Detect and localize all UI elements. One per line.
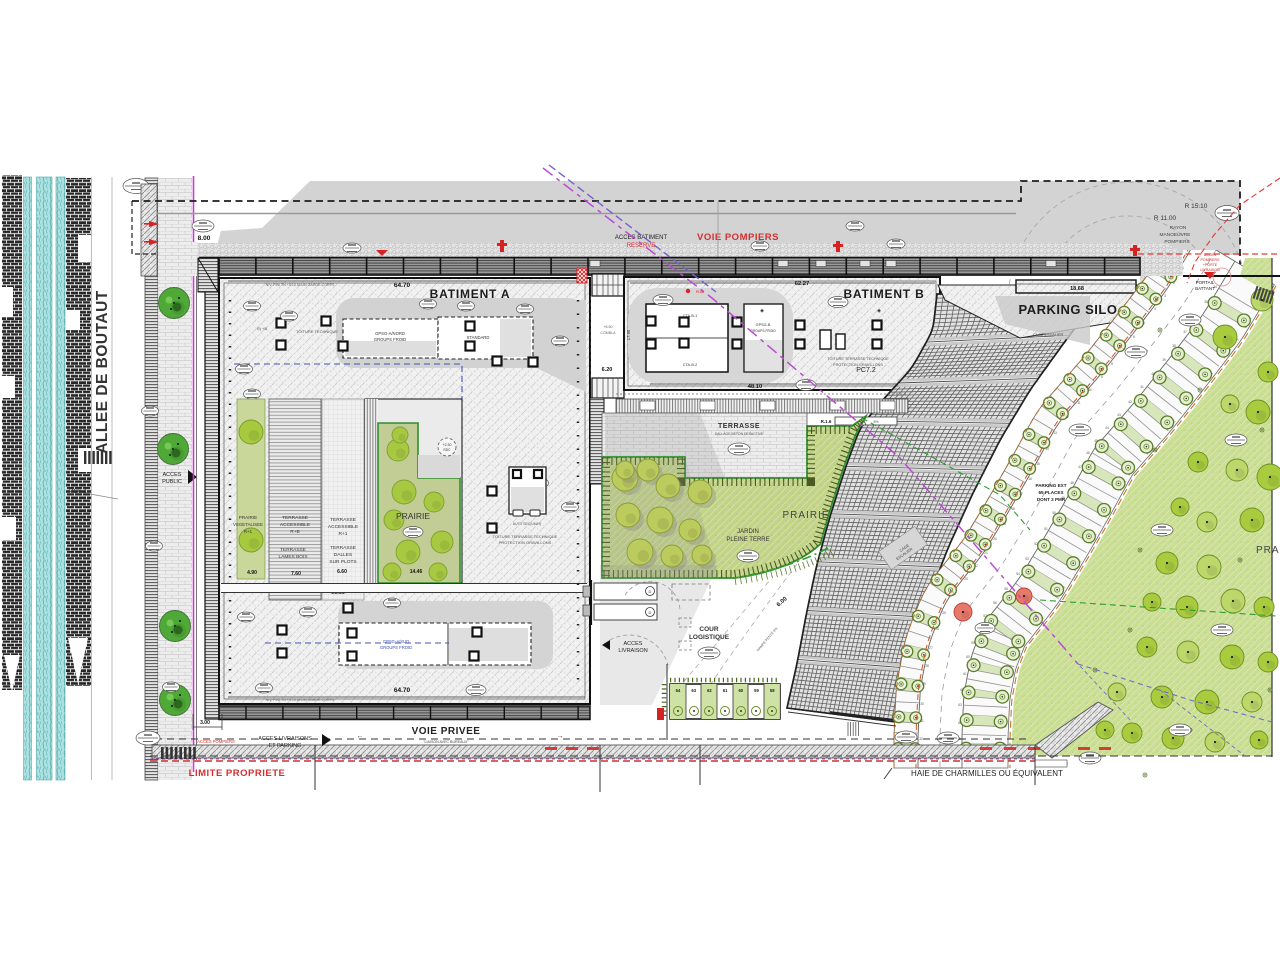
svg-text:DALLES: DALLES — [334, 552, 352, 558]
svg-text:5: 5 — [1143, 321, 1145, 325]
svg-text:14.46: 14.46 — [410, 569, 423, 575]
svg-text:TERRASSE: TERRASSE — [280, 547, 306, 553]
svg-text:27: 27 — [929, 646, 933, 650]
svg-text:7: 7 — [1122, 348, 1124, 352]
svg-text:BATIMENT B: BATIMENT B — [843, 287, 924, 301]
svg-text:48: 48 — [1070, 481, 1074, 485]
svg-text:21: 21 — [984, 551, 988, 555]
svg-text:GROUPS FROID: GROUPS FROID — [380, 645, 412, 650]
svg-text:3.00: 3.00 — [200, 720, 210, 726]
svg-text:NIV. FINI TN +5.10 ALUM GARDE-: NIV. FINI TN +5.10 ALUM GARDE-CORPS — [266, 283, 335, 287]
svg-text:4.90: 4.90 — [247, 570, 257, 576]
svg-text:38: 38 — [1172, 344, 1176, 348]
svg-text:32: 32 — [919, 737, 923, 741]
svg-text:R.1.6: R.1.6 — [821, 419, 832, 424]
svg-text:37: 37 — [1183, 330, 1187, 334]
svg-text:24: 24 — [952, 592, 956, 596]
svg-text:PRAIRIE: PRAIRIE — [782, 510, 829, 521]
svg-text:PORTAIL: PORTAIL — [1196, 280, 1215, 285]
svg-text:30: 30 — [920, 702, 924, 706]
svg-text:PARKING EXT: PARKING EXT — [1035, 483, 1066, 488]
svg-text:52: 52 — [1034, 542, 1038, 546]
svg-text:COMBLA: COMBLA — [600, 331, 616, 335]
svg-text:59: 59 — [754, 688, 759, 693]
svg-text:18: 18 — [1011, 507, 1015, 511]
svg-text:JARDIN: JARDIN — [737, 529, 759, 535]
svg-text:17.95: 17.95 — [626, 329, 631, 340]
svg-text:ACCES BATIMENT: ACCES BATIMENT — [615, 235, 668, 241]
svg-text:57: 57 — [983, 614, 987, 618]
svg-text:60: 60 — [966, 655, 970, 659]
svg-text:PRAIRIE: PRAIRIE — [1256, 545, 1280, 556]
svg-text:DALLAGE BETON DESACTIVE: DALLAGE BETON DESACTIVE — [715, 432, 764, 436]
svg-text:TERRASSE: TERRASSE — [282, 515, 308, 521]
svg-text:VOIE PRIVEE: VOIE PRIVEE — [412, 726, 481, 737]
svg-text:43: 43 — [1117, 413, 1121, 417]
svg-text:R) +B: R) +B — [257, 326, 268, 331]
svg-text:COUR: COUR — [699, 626, 718, 633]
svg-text:R+B: R+B — [290, 529, 299, 535]
svg-text:POMPIERS: POMPIERS — [1201, 258, 1221, 262]
svg-text:12: 12 — [1065, 415, 1069, 419]
svg-text:23: 23 — [964, 577, 968, 581]
svg-text:61: 61 — [963, 672, 967, 676]
svg-text:ACCES: ACCES — [1204, 253, 1217, 257]
svg-text:◈: ◈ — [877, 308, 881, 314]
svg-text:STANDARD: STANDARD — [467, 335, 490, 340]
svg-text:+PORTE: +PORTE — [1203, 263, 1218, 267]
svg-text:5%: 5% — [873, 420, 878, 424]
svg-text:50: 50 — [1052, 511, 1056, 515]
svg-text:ACCESSIBLE: ACCESSIBLE — [280, 522, 310, 528]
svg-text:59: 59 — [971, 641, 975, 645]
svg-text:65 PLACES: 65 PLACES — [1038, 490, 1063, 495]
svg-text:64.70: 64.70 — [394, 282, 411, 289]
svg-text:15: 15 — [1036, 462, 1040, 466]
svg-text:56: 56 — [993, 601, 997, 605]
svg-text:TOITURE TECHNIQUE: TOITURE TECHNIQUE — [296, 329, 338, 334]
svg-text:31: 31 — [920, 719, 924, 723]
svg-text:TERRASSE: TERRASSE — [330, 517, 356, 523]
svg-text:LIVRAISON: LIVRAISON — [618, 648, 647, 654]
svg-text:GROUPS FROID: GROUPS FROID — [374, 337, 406, 342]
svg-text:R+1: R+1 — [339, 531, 348, 537]
svg-text:◈: ◈ — [760, 308, 764, 314]
svg-text:CAGE ESCALIER: CAGE ESCALIER — [1033, 333, 1064, 337]
svg-text:PARKING SILO: PARKING SILO — [1019, 302, 1118, 317]
svg-text:44: 44 — [1105, 426, 1109, 430]
svg-text:64: 64 — [958, 721, 962, 725]
svg-text:6.20: 6.20 — [602, 367, 613, 373]
svg-text:PROTECTION GRAVILLONS: PROTECTION GRAVILLONS — [499, 540, 552, 545]
svg-text:54: 54 — [1016, 572, 1020, 576]
svg-text:MANOEUVRE: MANOEUVRE — [1160, 232, 1191, 238]
svg-text:CTA-B-2: CTA-B-2 — [683, 363, 698, 367]
svg-text:ACCES POMPIERS: ACCES POMPIERS — [197, 739, 235, 744]
svg-text:61: 61 — [723, 688, 728, 693]
svg-text:47: 47 — [1078, 465, 1082, 469]
svg-text:DONT 2 PMR: DONT 2 PMR — [1037, 497, 1066, 502]
svg-text:BATTANT: BATTANT — [1195, 286, 1215, 291]
svg-text:6: 6 — [1133, 335, 1135, 339]
svg-text:←: ← — [357, 733, 364, 740]
svg-text:62.27: 62.27 — [795, 281, 810, 287]
svg-text:4: 4 — [1154, 307, 1156, 311]
svg-text:NIV. FINI TN +5.10 ALUM GARDE-: NIV. FINI TN +5.10 ALUM GARDE-CORPS — [266, 698, 335, 702]
svg-text:45: 45 — [1094, 439, 1098, 443]
svg-text:RAYON: RAYON — [1170, 225, 1187, 231]
svg-text:9: 9 — [1101, 375, 1103, 379]
svg-text:22: 22 — [974, 564, 978, 568]
svg-text:ACCESSIBLE: ACCESSIBLE — [328, 524, 358, 530]
svg-text:16: 16 — [1028, 477, 1032, 481]
svg-text:39: 39 — [1162, 358, 1166, 362]
svg-text:62: 62 — [707, 688, 712, 693]
svg-text:3: 3 — [1164, 294, 1166, 298]
svg-text:TERRASSE: TERRASSE — [330, 545, 356, 551]
svg-text:40: 40 — [1151, 372, 1155, 376]
svg-text:PLEINE TERRE: PLEINE TERRE — [726, 537, 769, 543]
svg-text:LIVRAISON: LIVRAISON — [1200, 268, 1220, 272]
svg-text:D: D — [649, 610, 652, 615]
svg-text:D: D — [649, 589, 652, 594]
svg-text:13: 13 — [1053, 431, 1057, 435]
svg-text:→: → — [557, 733, 564, 740]
svg-text:GPSG-A/NORD: GPSG-A/NORD — [375, 331, 405, 336]
svg-text:63: 63 — [691, 688, 696, 693]
svg-text:PRAIRIE: PRAIRIE — [396, 511, 430, 521]
svg-text:"LIAISON AVEC BUREAUX": "LIAISON AVEC BUREAUX" — [423, 740, 469, 744]
svg-text:ACCES LIVRAISONS: ACCES LIVRAISONS — [258, 736, 312, 742]
svg-text:18.68: 18.68 — [1070, 286, 1084, 292]
svg-text:PROTECTION GRAVILLONS: PROTECTION GRAVILLONS — [833, 363, 883, 367]
svg-text:63: 63 — [958, 703, 962, 707]
svg-text:48.10: 48.10 — [748, 384, 763, 390]
svg-text:20: 20 — [993, 537, 997, 541]
svg-text:8: 8 — [1111, 362, 1113, 366]
svg-text:19: 19 — [1002, 522, 1006, 526]
svg-text:51: 51 — [1044, 527, 1048, 531]
svg-text:PC7.2: PC7.2 — [856, 367, 876, 374]
svg-text:AUTO SEC(UM/H): AUTO SEC(UM/H) — [513, 522, 541, 526]
svg-text:LIMITE PROPRIETE: LIMITE PROPRIETE — [189, 768, 286, 779]
svg-text:29: 29 — [922, 682, 926, 686]
svg-text:PRAIRIE: PRAIRIE — [239, 515, 257, 520]
svg-text:R 15.10: R 15.10 — [1185, 203, 1208, 210]
svg-text:10: 10 — [1088, 388, 1092, 392]
svg-text:ACCES: ACCES — [163, 472, 182, 478]
svg-text:64.70: 64.70 — [394, 687, 411, 694]
svg-text:TERRASSE: TERRASSE — [718, 423, 760, 430]
svg-text:PUBLIC: PUBLIC — [162, 479, 182, 485]
svg-text:R 11.00: R 11.00 — [1154, 215, 1177, 222]
svg-text:RDC: RDC — [444, 448, 452, 452]
svg-text:8.00: 8.00 — [198, 235, 211, 242]
svg-text:25: 25 — [942, 611, 946, 615]
svg-text:ALLEE DE BOUTAUT: ALLEE DE BOUTAUT — [94, 290, 111, 454]
svg-text:64: 64 — [676, 688, 681, 693]
svg-text:LAMES BOIS: LAMES BOIS — [278, 554, 307, 560]
svg-text:6.60: 6.60 — [337, 569, 347, 575]
svg-text:17: 17 — [1019, 492, 1023, 496]
svg-text:SUR PLOTS: SUR PLOTS — [329, 559, 356, 565]
svg-text:35: 35 — [1204, 300, 1208, 304]
svg-text:46: 46 — [1086, 451, 1090, 455]
svg-text:42: 42 — [1128, 400, 1132, 404]
svg-text:62: 62 — [960, 688, 964, 692]
svg-text:55: 55 — [1004, 587, 1008, 591]
svg-text:GPSG-B: GPSG-B — [756, 323, 771, 327]
svg-text:26: 26 — [935, 627, 939, 631]
svg-text:TOITURE TERRASSE TECHNIQUE: TOITURE TERRASSE TECHNIQUE — [827, 357, 889, 361]
svg-text:ET PARKING: ET PARKING — [269, 743, 302, 749]
svg-text:ACCES: ACCES — [624, 641, 643, 647]
svg-text:TOITURE TERRASSE TECHNIQUE: TOITURE TERRASSE TECHNIQUE — [493, 534, 558, 539]
svg-text:58: 58 — [770, 688, 775, 693]
svg-text:28: 28 — [925, 664, 929, 668]
svg-text:HAIE DE CHARMILLES OU ÉQUIVALE: HAIE DE CHARMILLES OU ÉQUIVALENT — [911, 769, 1063, 778]
svg-text:VEGETALISEE: VEGETALISEE — [233, 522, 263, 527]
svg-text:PC6.1: PC6.1 — [69, 488, 87, 495]
svg-text:14: 14 — [1045, 447, 1049, 451]
svg-text:53: 53 — [1025, 557, 1029, 561]
svg-text:+2.30: +2.30 — [443, 443, 452, 447]
svg-text:2: 2 — [1173, 281, 1175, 285]
svg-text:R+1: R+1 — [244, 529, 253, 534]
svg-text:7.60: 7.60 — [291, 571, 301, 577]
svg-text:11: 11 — [1077, 401, 1081, 405]
svg-text:+6.50: +6.50 — [603, 325, 612, 329]
svg-text:60: 60 — [738, 688, 743, 693]
svg-text:LOGISTIQUE: LOGISTIQUE — [689, 634, 730, 641]
svg-text:GROUPS FROID: GROUPS FROID — [750, 329, 776, 333]
svg-text:41: 41 — [1140, 385, 1144, 389]
svg-text:VOIE POMPIERS: VOIE POMPIERS — [697, 232, 779, 243]
